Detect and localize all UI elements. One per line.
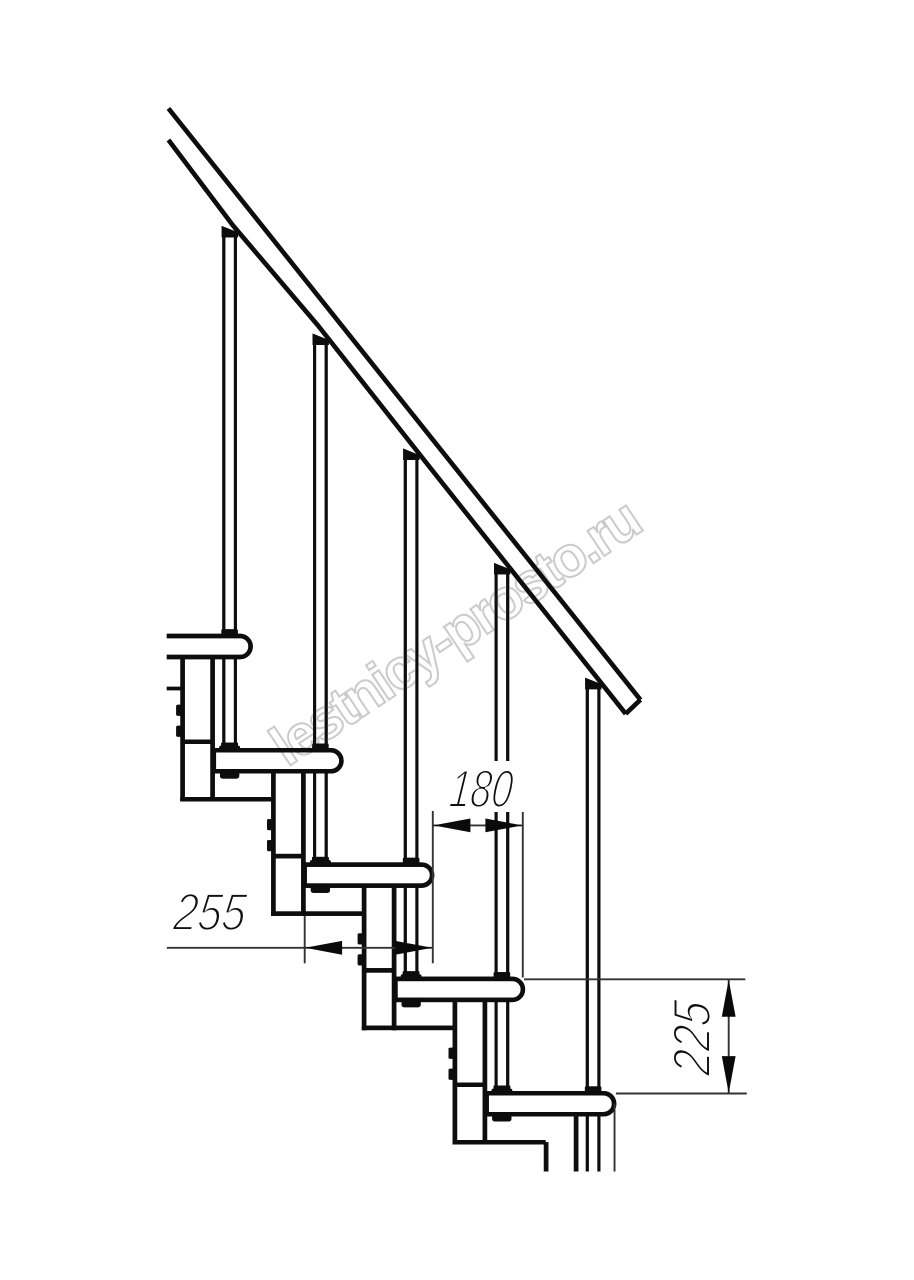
svg-text:225: 225 xyxy=(664,997,723,1078)
svg-text:180: 180 xyxy=(447,759,516,819)
svg-text:255: 255 xyxy=(170,883,249,942)
